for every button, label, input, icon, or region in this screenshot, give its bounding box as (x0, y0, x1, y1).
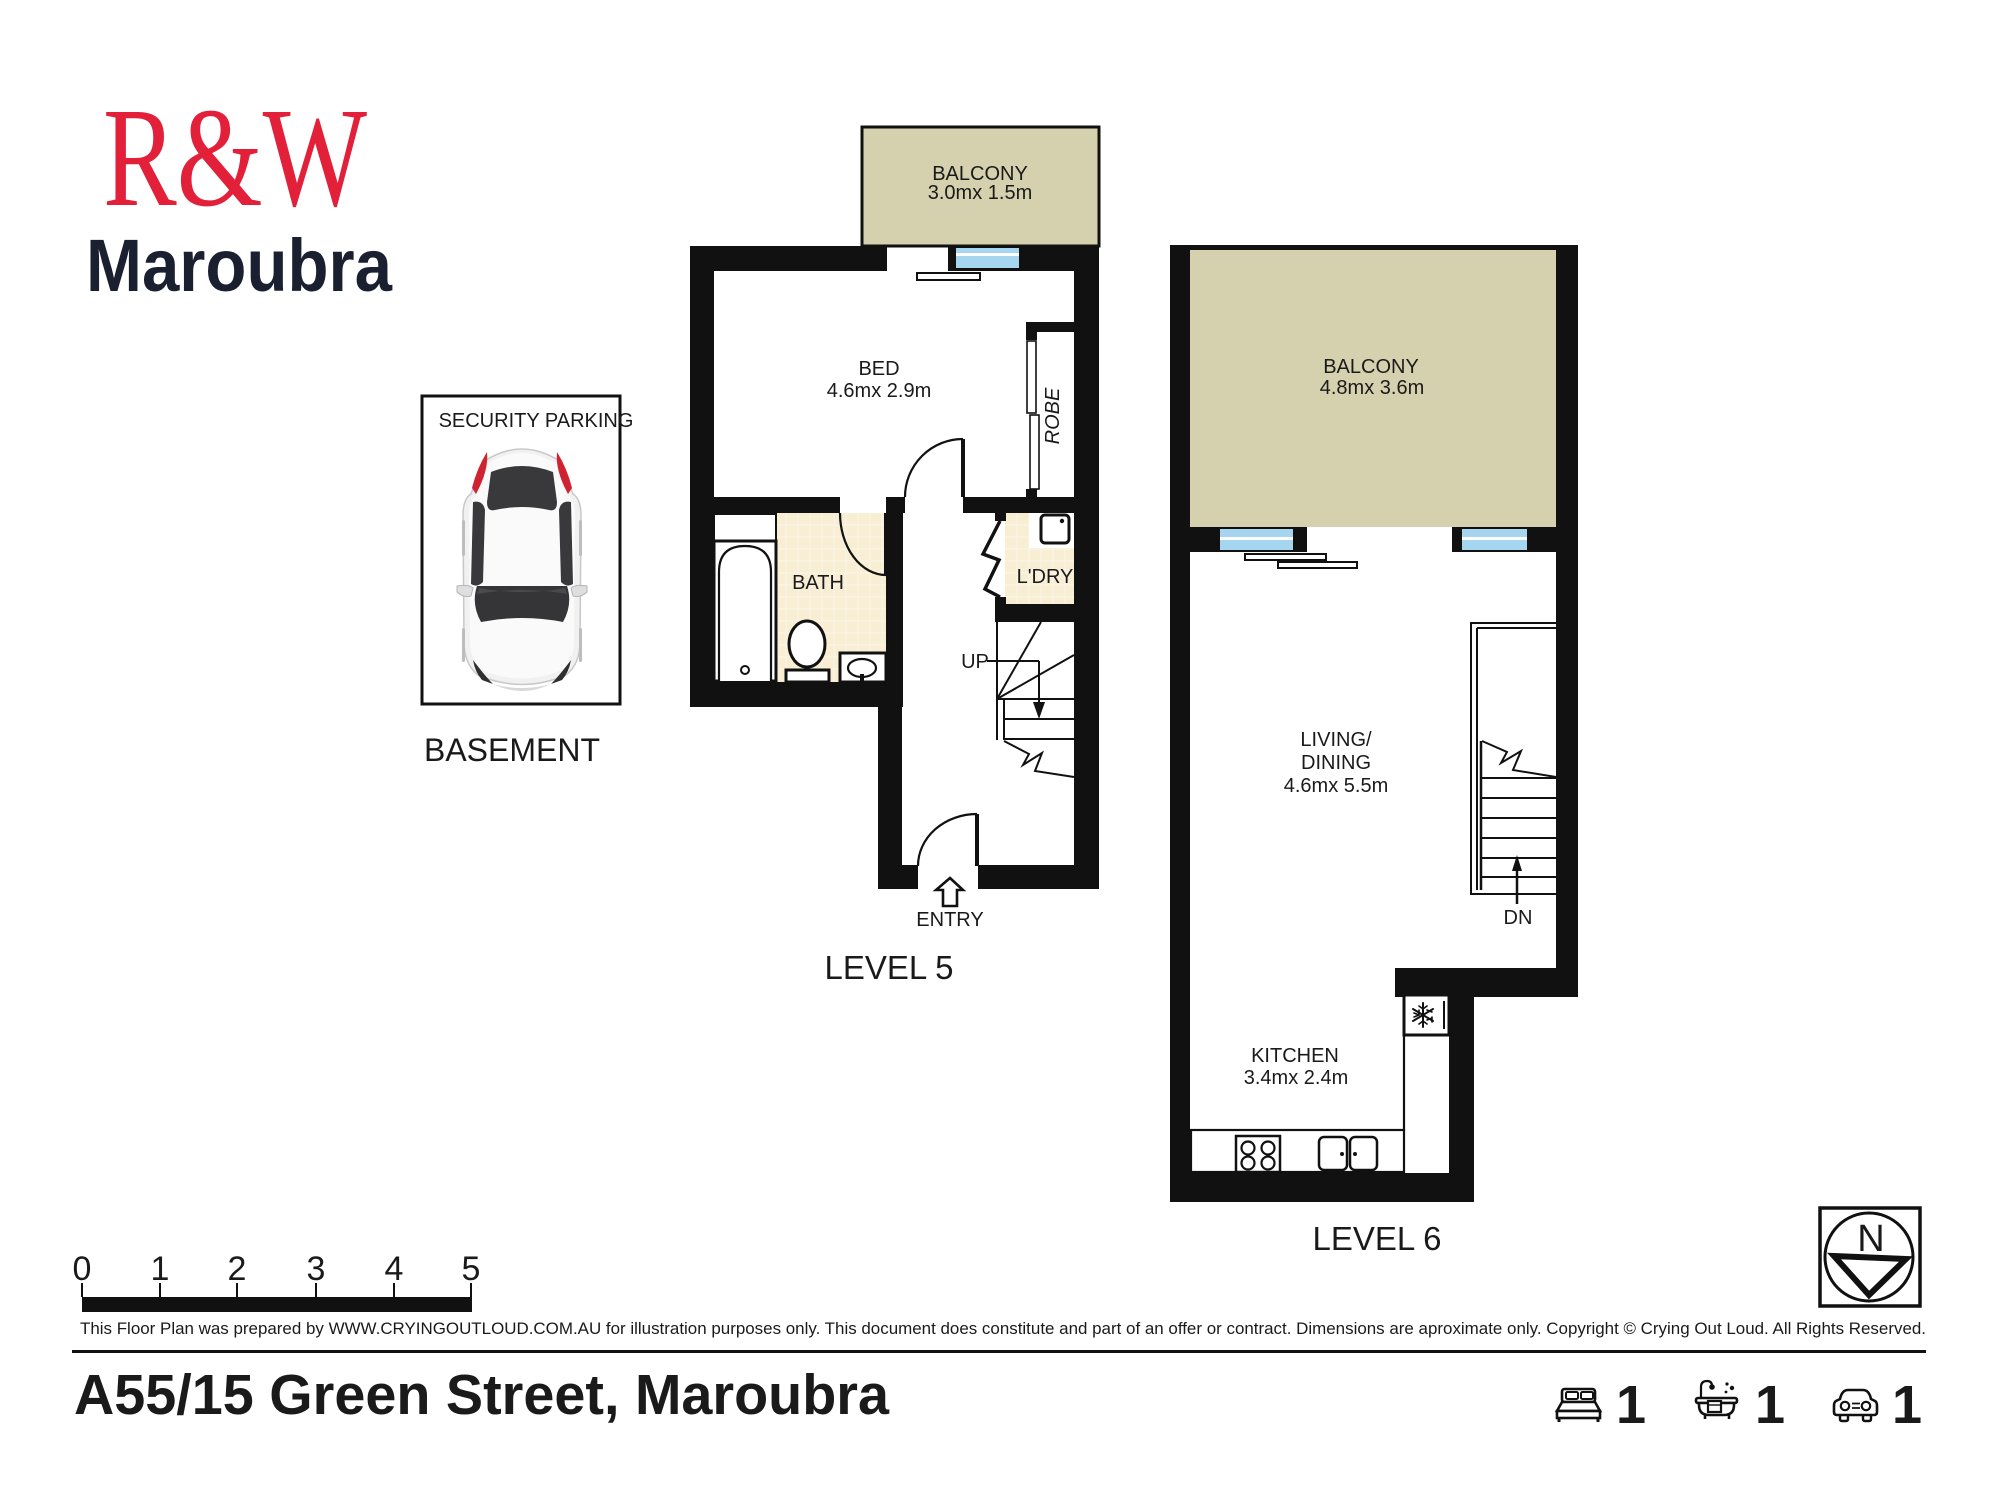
svg-text:1: 1 (1755, 1375, 1785, 1435)
svg-text:ROBE: ROBE (1042, 387, 1064, 444)
svg-text:4.6mx 5.5m: 4.6mx 5.5m (1284, 775, 1388, 797)
svg-text:3.0mx 1.5m: 3.0mx 1.5m (928, 182, 1032, 204)
svg-text:5: 5 (462, 1250, 481, 1288)
svg-text:DN: DN (1504, 907, 1533, 929)
svg-text:0: 0 (73, 1250, 92, 1288)
svg-text:4.8mx 3.6m: 4.8mx 3.6m (1320, 377, 1424, 399)
svg-text:LEVEL 5: LEVEL 5 (824, 949, 953, 986)
svg-text:Maroubra: Maroubra (86, 224, 393, 307)
svg-text:BASEMENT: BASEMENT (424, 732, 600, 768)
svg-text:BALCONY: BALCONY (1323, 356, 1419, 378)
svg-text:1: 1 (1892, 1375, 1922, 1435)
svg-text:1: 1 (151, 1250, 170, 1288)
svg-text:N: N (1857, 1218, 1884, 1260)
svg-text:BATH: BATH (792, 572, 844, 594)
svg-text:1: 1 (1616, 1375, 1646, 1435)
svg-text:BED: BED (858, 358, 899, 380)
svg-text:L'DRY: L'DRY (1017, 566, 1074, 588)
svg-text:DINING: DINING (1301, 752, 1371, 774)
svg-text:LIVING/: LIVING/ (1300, 729, 1372, 751)
svg-text:SECURITY PARKING: SECURITY PARKING (439, 410, 634, 432)
svg-text:This Floor Plan was prepared b: This Floor Plan was prepared by WWW.CRYI… (80, 1320, 1926, 1338)
svg-text:4: 4 (385, 1250, 404, 1288)
svg-text:KITCHEN: KITCHEN (1251, 1045, 1339, 1067)
svg-text:UP: UP (961, 651, 989, 673)
svg-text:4.6mx 2.9m: 4.6mx 2.9m (827, 380, 931, 402)
svg-text:3: 3 (307, 1250, 326, 1288)
svg-text:R&W: R&W (103, 78, 367, 236)
svg-text:LEVEL 6: LEVEL 6 (1312, 1220, 1441, 1257)
svg-text:ENTRY: ENTRY (916, 909, 983, 931)
svg-text:2: 2 (228, 1250, 247, 1288)
svg-text:3.4mx 2.4m: 3.4mx 2.4m (1244, 1067, 1348, 1089)
svg-text:A55/15 Green Street, Maroubra: A55/15 Green Street, Maroubra (74, 1363, 890, 1427)
